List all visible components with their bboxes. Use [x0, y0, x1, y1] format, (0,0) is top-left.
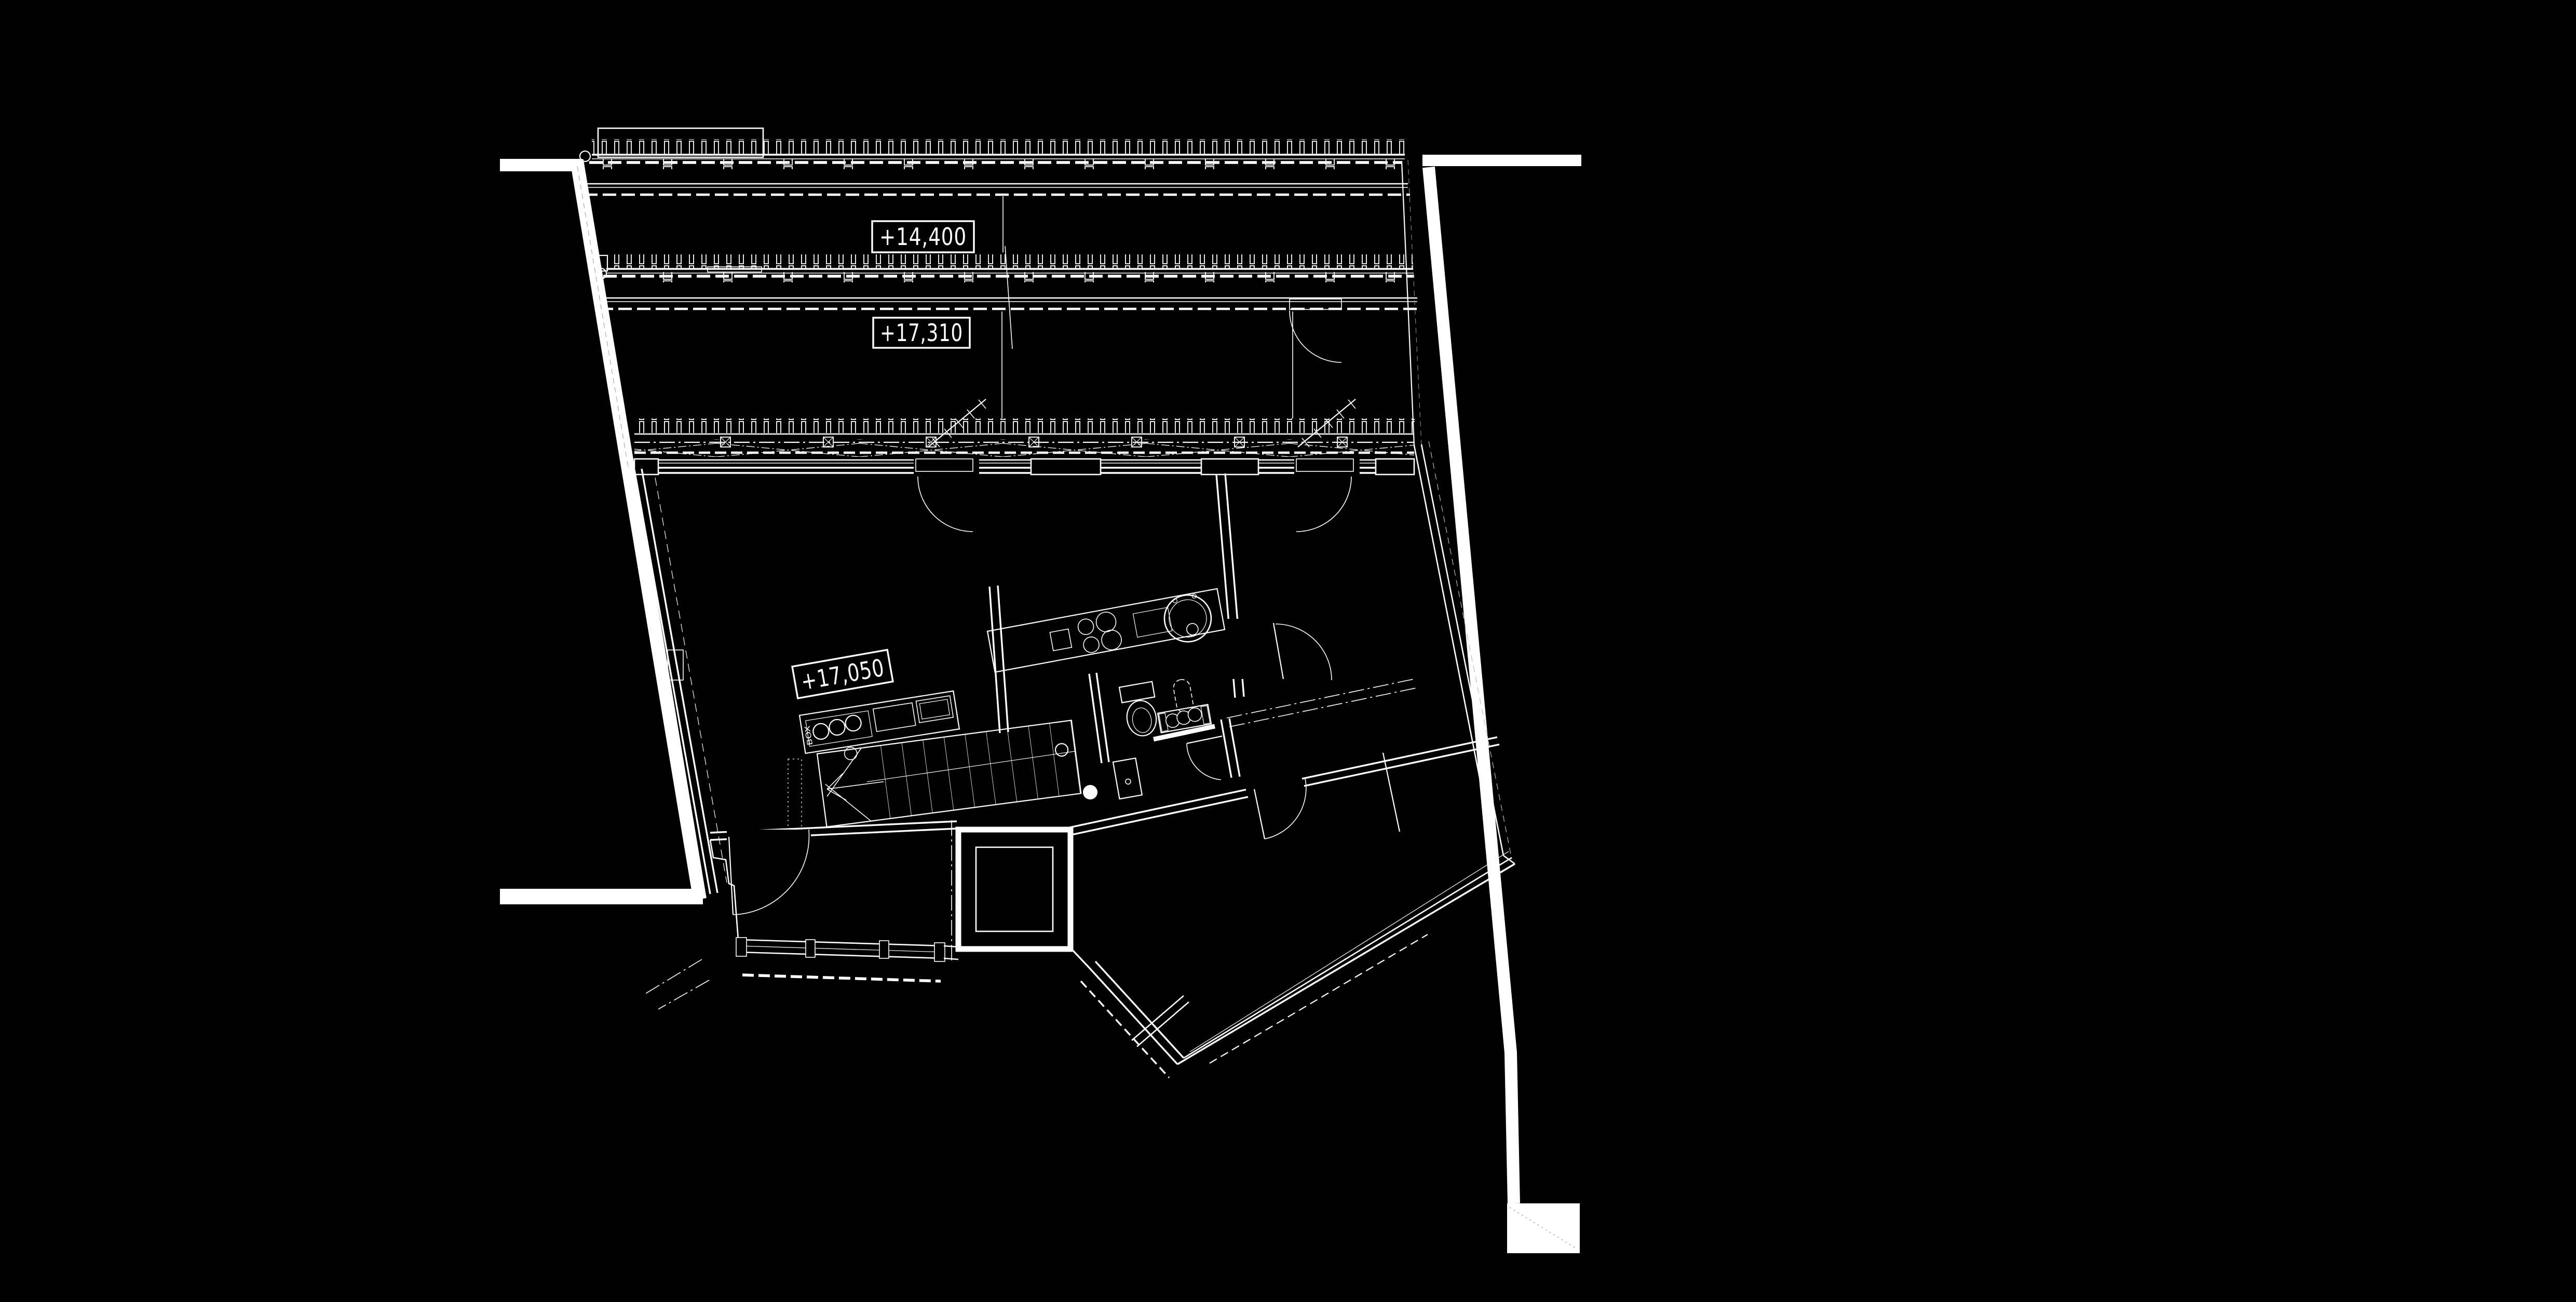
- facade-pier: [1201, 459, 1258, 474]
- facade-pier: [1376, 459, 1414, 474]
- stair-dotted-edge: [788, 759, 802, 833]
- cupboard-door: [1113, 758, 1142, 799]
- kitchen-module: [1050, 629, 1072, 651]
- floor-plan-canvas: BOX: [0, 0, 2576, 1302]
- bathroom-door-swing: [1187, 743, 1221, 780]
- parapet-balusters: [592, 139, 1405, 155]
- boundary-corner-block: [1507, 1203, 1580, 1253]
- room-door-swing: [733, 830, 809, 915]
- terrace-parapet-band: [595, 196, 1419, 418]
- level-label-terrace: +17,310: [873, 318, 970, 348]
- terrace-door-swing: [1290, 310, 1341, 362]
- level-floor-text: +17,050: [799, 654, 887, 696]
- facade-door-swing: [1296, 477, 1351, 532]
- boundary-right-diagonal: [1429, 167, 1514, 1203]
- terrace-posts: [613, 272, 1409, 282]
- island-marking-text: BOX: [803, 725, 815, 746]
- drainer: [1133, 607, 1172, 638]
- bay-cross-wall: [1132, 996, 1189, 1047]
- right-room-door: [1273, 623, 1332, 680]
- living-room-walls: [634, 469, 727, 894]
- island-appliance: [873, 703, 916, 731]
- parapet-posts: [597, 159, 1397, 169]
- stair-treads: [862, 721, 1081, 821]
- level-roof-text: +14,400: [879, 223, 967, 251]
- level-label-floor: +17,050: [792, 650, 893, 698]
- facade-door-swing: [918, 477, 973, 532]
- facade-pier: [634, 459, 658, 474]
- facade-pier: [1031, 459, 1101, 474]
- bathroom-fixtures: [1083, 678, 1222, 799]
- roof-parapet-band: [580, 128, 1410, 195]
- level-label-roof: +14,400: [872, 221, 974, 252]
- shaft-room: [952, 820, 1070, 960]
- island-appliance: [916, 696, 953, 723]
- plumbing-axis: [1227, 679, 1417, 727]
- facade-balusters: [636, 418, 1415, 433]
- staircase: [788, 721, 1081, 833]
- site-boundary-lines: [500, 160, 1581, 1253]
- kitchen-sink: [1161, 591, 1215, 646]
- parapet-end-cap: [580, 151, 590, 161]
- cooktop: [1076, 610, 1123, 655]
- facade-glazing-band: [634, 399, 1415, 532]
- level-terrace-text: +17,310: [880, 319, 963, 347]
- toilet: [1119, 682, 1161, 739]
- column: [1083, 785, 1097, 799]
- diagonal-bay: [1070, 851, 1515, 1078]
- corridor-door: [1254, 778, 1306, 839]
- screenshot-root: BOX: [0, 0, 2576, 1302]
- kitchen-counter: [987, 589, 1226, 677]
